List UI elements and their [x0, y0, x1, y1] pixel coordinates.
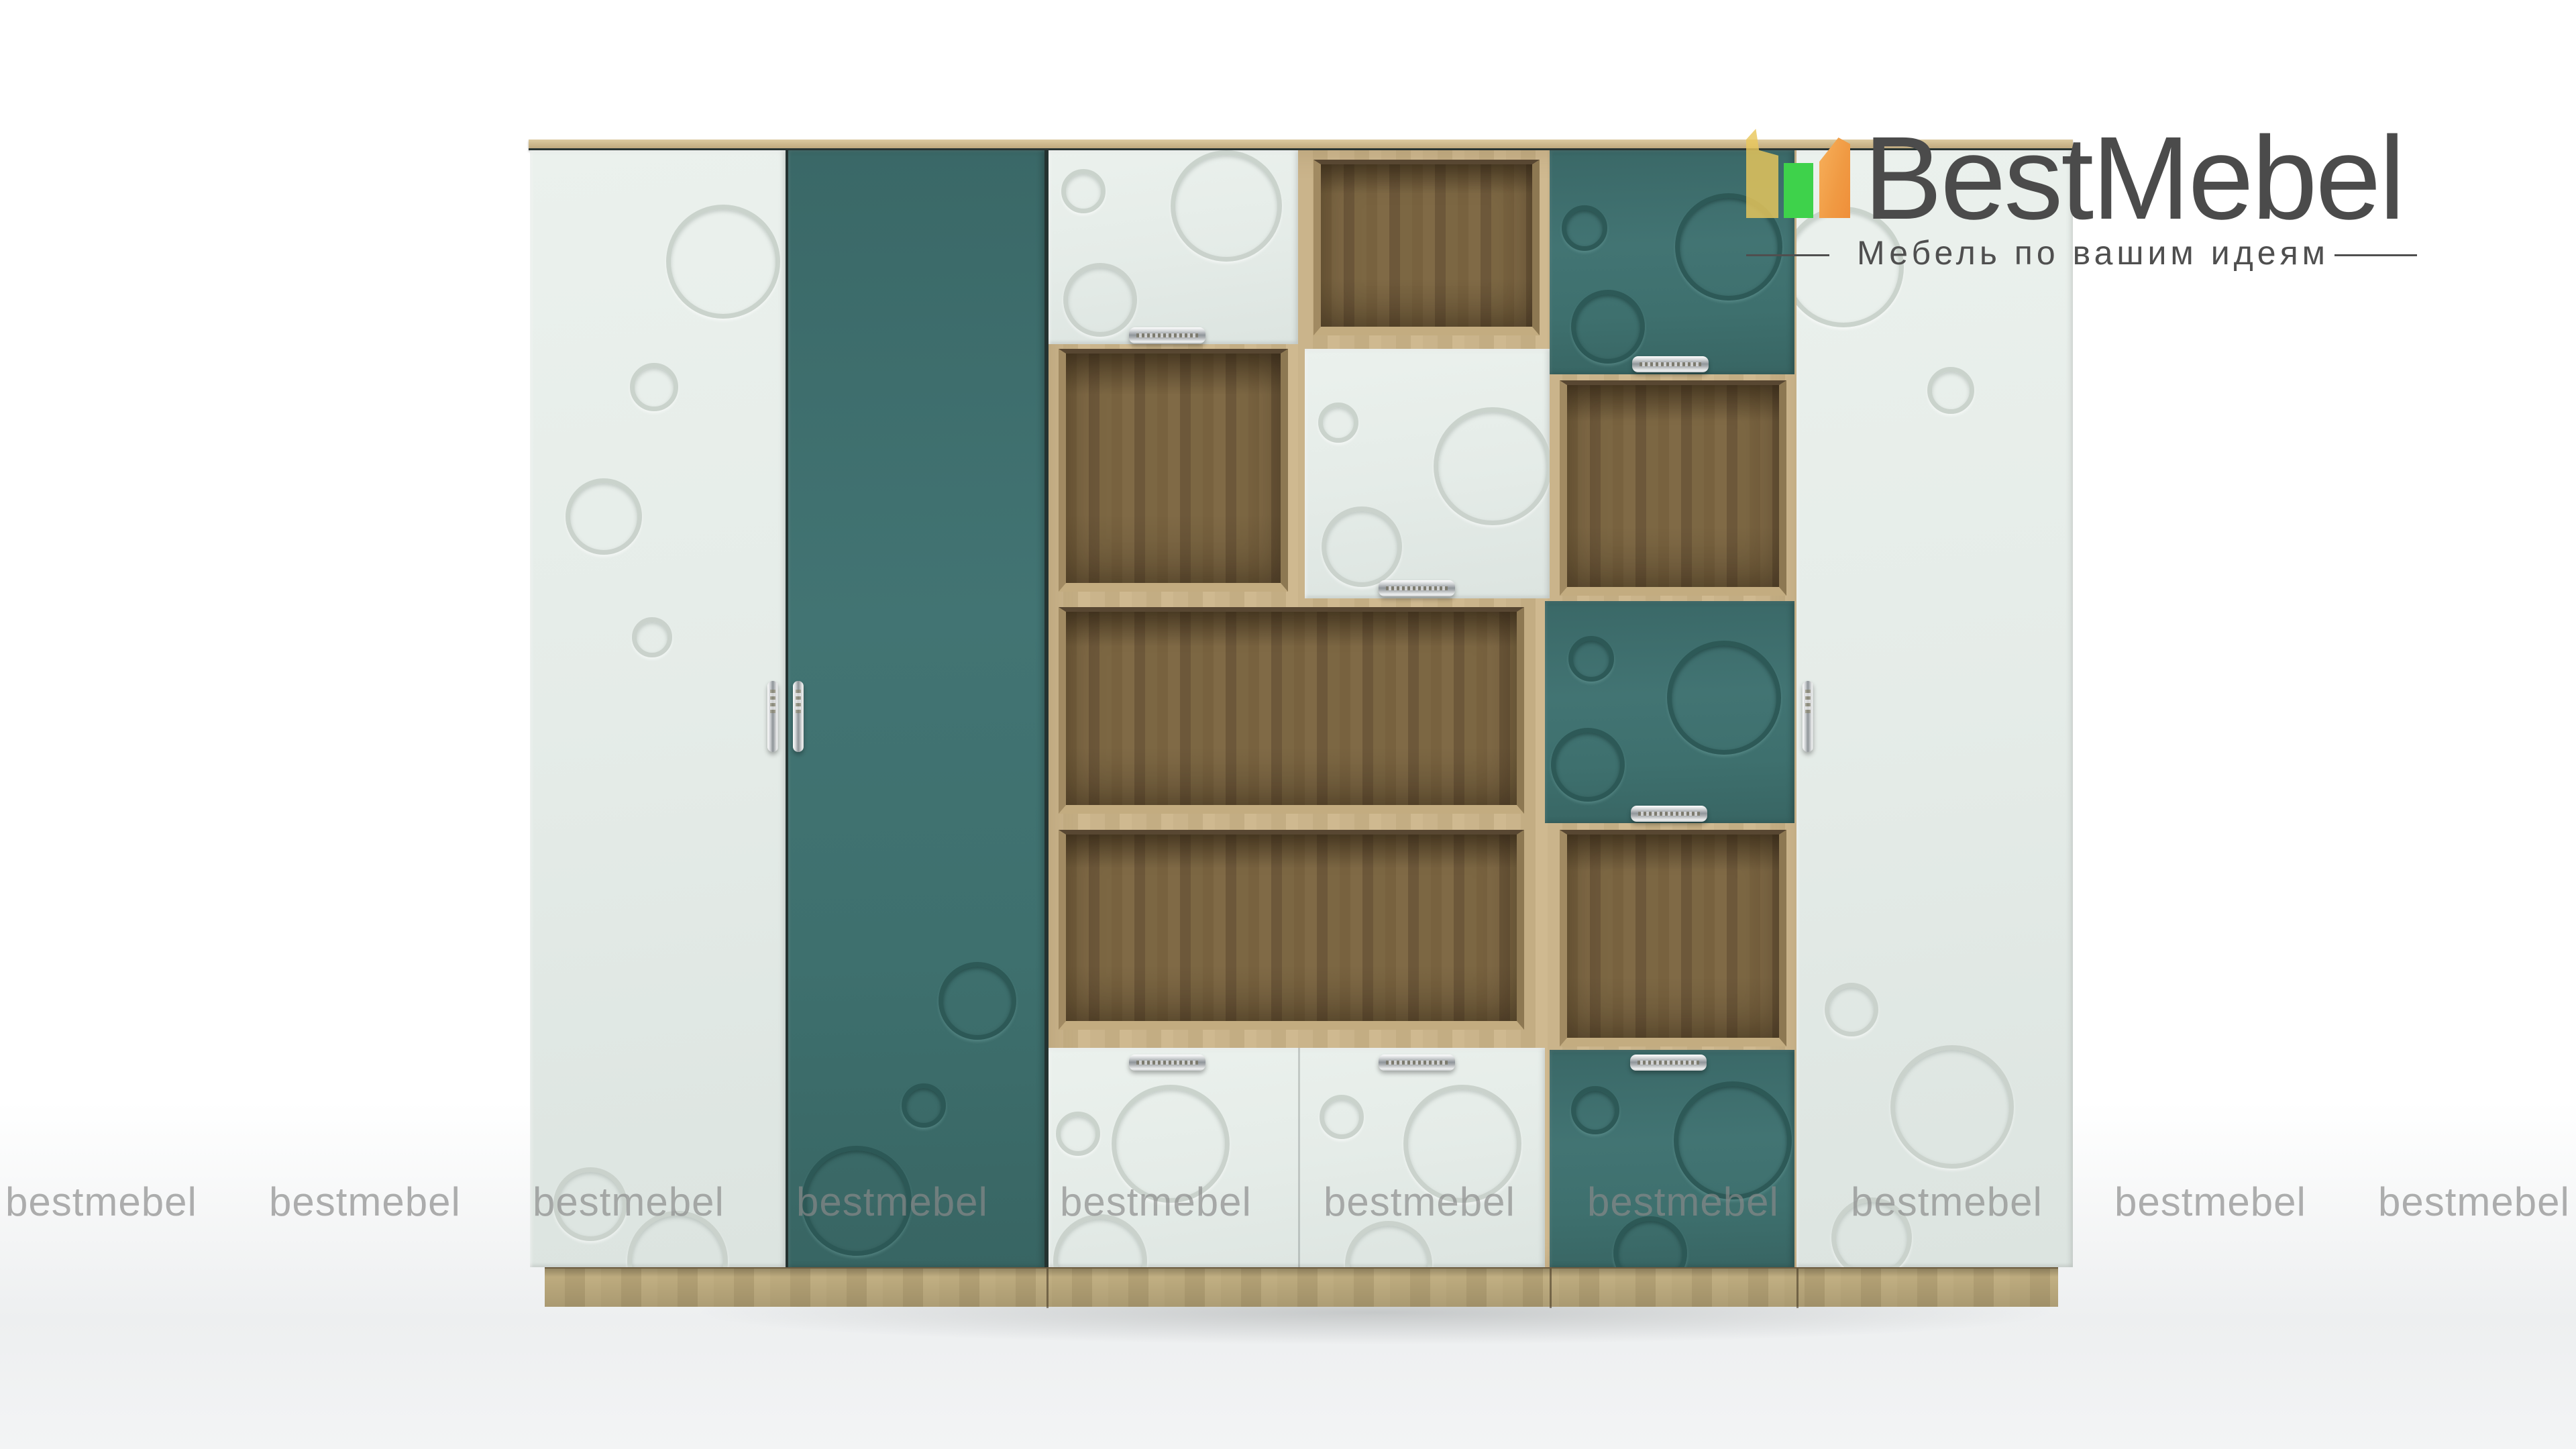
logo-bar-green-icon	[1784, 163, 1813, 218]
tagline-dash-right	[2334, 254, 2417, 256]
tagline-dash-left	[1746, 254, 1829, 256]
logo-bar-yellow-icon	[1746, 129, 1778, 218]
brand-tagline: Мебель по вашим идеям	[1857, 236, 2313, 270]
brand-logo: BestMebel Мебель по вашим идеям	[0, 0, 2576, 1449]
brand-name: BestMebel	[1864, 119, 2404, 237]
product-photo: bestmebelbestmebelbestmebelbestmebelbest…	[0, 0, 2576, 1449]
logo-bar-orange-icon	[1819, 138, 1850, 218]
